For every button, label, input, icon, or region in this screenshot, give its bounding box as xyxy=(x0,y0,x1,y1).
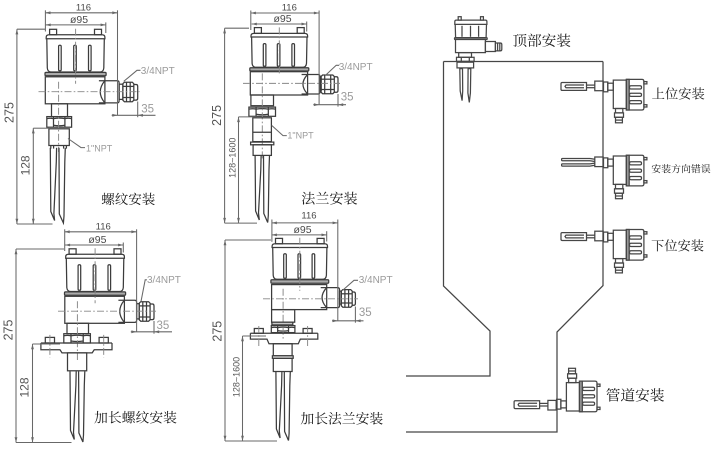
svg-text:128: 128 xyxy=(17,377,31,397)
svg-text:275: 275 xyxy=(210,105,224,126)
svg-text:35: 35 xyxy=(141,103,154,115)
svg-text:116: 116 xyxy=(96,222,111,233)
svg-text:ø95: ø95 xyxy=(70,14,88,26)
svg-text:ø95: ø95 xyxy=(293,224,311,236)
svg-text:1"NPT: 1"NPT xyxy=(86,143,113,153)
svg-text:ø95: ø95 xyxy=(88,234,106,246)
svg-text:116: 116 xyxy=(301,211,316,222)
svg-text:275: 275 xyxy=(1,320,15,341)
svg-text:35: 35 xyxy=(359,307,372,319)
svg-text:3/4NPT: 3/4NPT xyxy=(141,66,175,77)
svg-text:3/4NPT: 3/4NPT xyxy=(147,275,181,286)
svg-text:35: 35 xyxy=(157,320,170,332)
svg-text:3/4NPT: 3/4NPT xyxy=(339,62,373,73)
svg-text:3/4NPT: 3/4NPT xyxy=(359,275,393,286)
svg-text:ø95: ø95 xyxy=(273,13,291,25)
svg-text:128~1600: 128~1600 xyxy=(232,357,242,397)
svg-text:128: 128 xyxy=(19,155,33,175)
svg-text:128~1600: 128~1600 xyxy=(227,138,237,178)
svg-text:35: 35 xyxy=(341,92,354,104)
svg-text:1"NPT: 1"NPT xyxy=(287,131,314,141)
svg-text:116: 116 xyxy=(282,2,297,13)
svg-text:275: 275 xyxy=(2,102,16,123)
svg-text:275: 275 xyxy=(210,321,224,342)
svg-text:116: 116 xyxy=(76,3,91,14)
